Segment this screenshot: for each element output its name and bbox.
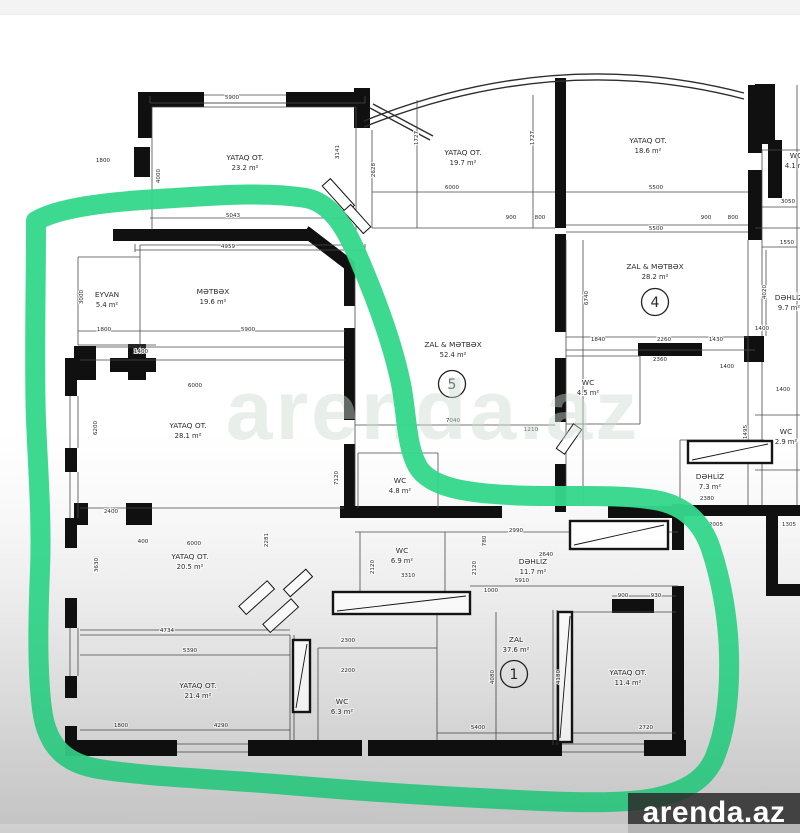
green-loop-stroke (35, 194, 729, 802)
highlight-annotation (0, 0, 800, 833)
photo-bottom-strip (0, 824, 800, 833)
screenshot-root: YATAQ OT.23.2 m²YATAQ OT.19.7 m²YATAQ OT… (0, 0, 800, 833)
